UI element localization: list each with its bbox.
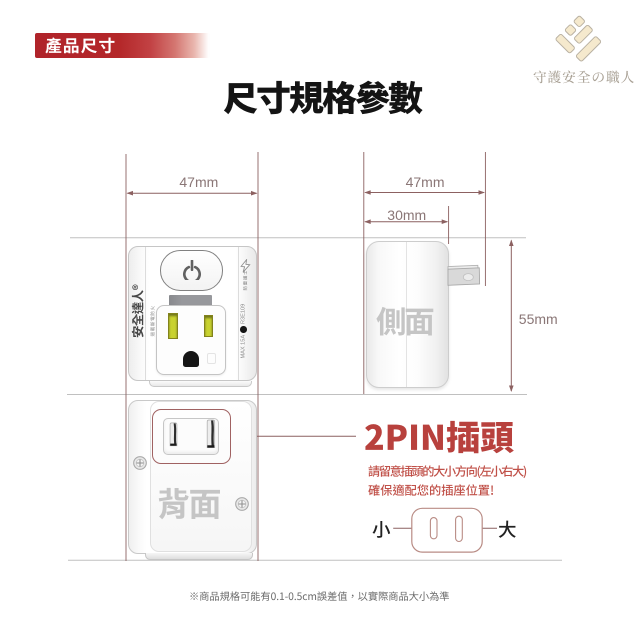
svg-text:R3E109: R3E109 xyxy=(241,304,247,324)
svg-text:MAX 15A: MAX 15A xyxy=(241,335,247,359)
